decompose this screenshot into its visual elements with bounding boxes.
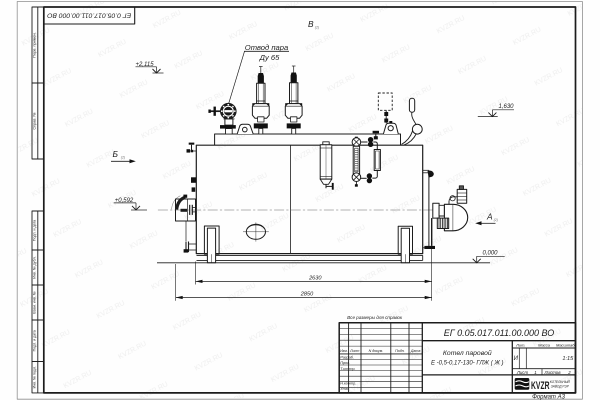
svg-text:КОТЕЛЬНЫЙ: КОТЕЛЬНЫЙ bbox=[550, 380, 571, 384]
svg-text:Все размеры для справок: Все размеры для справок bbox=[347, 315, 403, 320]
svg-text:Дата: Дата bbox=[410, 349, 420, 353]
svg-text:Подп.: Подп. bbox=[395, 349, 405, 353]
svg-text:(2): (2) bbox=[494, 218, 498, 222]
svg-text:ЗАВОД РЭР: ЗАВОД РЭР bbox=[551, 385, 570, 389]
svg-text:Взам. инв. №: Взам. инв. № bbox=[33, 291, 37, 313]
svg-text:Подп. и дата: Подп. и дата bbox=[33, 220, 37, 241]
svg-text:Листов: Листов bbox=[544, 370, 562, 375]
svg-text:Изм.: Изм. bbox=[340, 349, 348, 353]
svg-text:Утв.: Утв. bbox=[340, 387, 349, 391]
svg-text:2850: 2850 bbox=[300, 291, 314, 297]
svg-text:И: И bbox=[514, 356, 519, 362]
svg-text:Подп. и дата: Подп. и дата bbox=[33, 330, 37, 351]
svg-text:2: 2 bbox=[567, 370, 571, 375]
svg-text:(2): (2) bbox=[121, 156, 125, 160]
svg-text:А: А bbox=[486, 211, 493, 221]
svg-text:Е -0,5-0,17-130- ГЛЖ ( Ж ): Е -0,5-0,17-130- ГЛЖ ( Ж ) bbox=[431, 361, 504, 367]
svg-text:Инв. № подл.: Инв. № подл. bbox=[33, 366, 37, 388]
svg-text:Отвод пара: Отвод пара bbox=[245, 43, 288, 52]
svg-text:Н.контр.: Н.контр. bbox=[340, 381, 356, 385]
svg-text:Т.контр.: Т.контр. bbox=[340, 367, 355, 371]
svg-text:Лит.: Лит. bbox=[515, 342, 525, 347]
svg-text:Пров.: Пров. bbox=[340, 361, 350, 365]
svg-text:1:15: 1:15 bbox=[562, 356, 574, 362]
svg-text:Инв. № дубл.: Инв. № дубл. bbox=[33, 256, 37, 278]
svg-text:(2): (2) bbox=[315, 25, 319, 29]
svg-text:Ду 65: Ду 65 bbox=[259, 53, 281, 62]
svg-text:0,000: 0,000 bbox=[482, 251, 498, 257]
svg-text:Справ. №: Справ. № bbox=[33, 112, 37, 129]
svg-text:Разраб.: Разраб. bbox=[340, 356, 354, 360]
svg-text:2630: 2630 bbox=[308, 275, 322, 281]
svg-text:ЕГ 0.05.017.011.00.000 ВО: ЕГ 0.05.017.011.00.000 ВО bbox=[444, 328, 555, 338]
svg-text:Перв. примен.: Перв. примен. bbox=[33, 32, 37, 57]
svg-text:Котел паровой: Котел паровой bbox=[443, 349, 492, 357]
svg-text:KVZR: KVZR bbox=[531, 380, 550, 392]
svg-text:Масса: Масса bbox=[538, 342, 551, 347]
svg-text:Б: Б bbox=[113, 149, 119, 159]
svg-text:1,630: 1,630 bbox=[498, 104, 514, 110]
svg-text:Лист: Лист bbox=[349, 349, 359, 353]
svg-text:Лист: Лист bbox=[516, 370, 529, 375]
svg-text:N докум.: N докум. bbox=[369, 349, 384, 353]
svg-text:Масштаб: Масштаб bbox=[556, 342, 575, 347]
svg-text:ЕГ 0.05.017.011.00.000 ВО: ЕГ 0.05.017.011.00.000 ВО bbox=[46, 11, 131, 18]
svg-text:В: В bbox=[308, 19, 314, 29]
svg-text:Формат А3: Формат А3 bbox=[532, 395, 565, 401]
